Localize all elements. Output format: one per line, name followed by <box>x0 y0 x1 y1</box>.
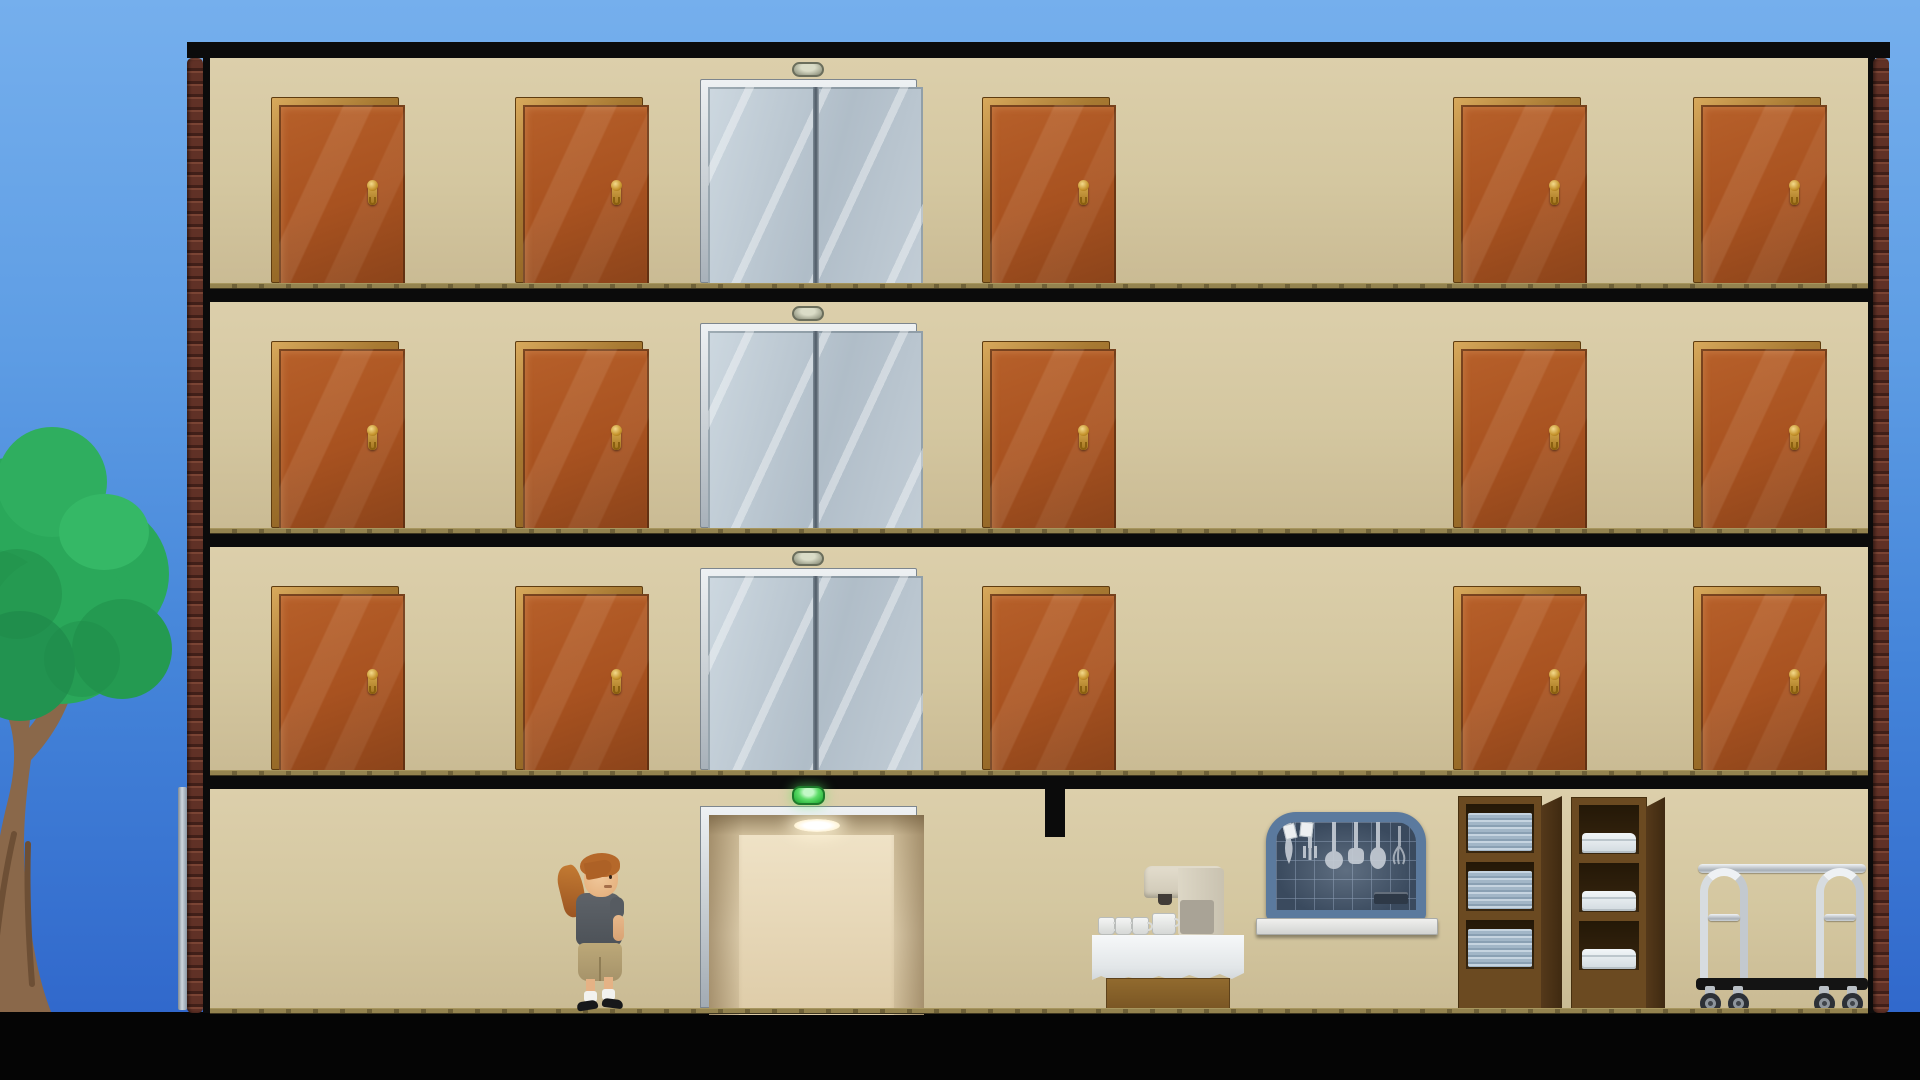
room-door-floor-1-3[interactable] <box>982 586 1110 770</box>
elevator-doors <box>708 331 923 534</box>
door-handle <box>1548 424 1561 454</box>
door-handle <box>1788 179 1801 209</box>
door-sheen <box>279 349 405 534</box>
coffee-service-table[interactable] <box>1092 866 1244 1010</box>
handle-knob <box>1549 669 1560 680</box>
elevator-door-seam <box>813 331 819 534</box>
door-panel <box>523 594 649 776</box>
shelf-compartment <box>1579 863 1639 912</box>
handle-hook <box>369 197 376 205</box>
door-sheen <box>523 349 649 534</box>
room-door-floor-3-1[interactable] <box>271 97 399 283</box>
elevator-floor-2[interactable] <box>700 323 917 528</box>
room-door-floor-1-4[interactable] <box>1453 586 1581 770</box>
elevator-back-wall <box>739 835 894 1015</box>
handle-knob <box>1789 425 1800 436</box>
housekeeper-character[interactable] <box>560 853 632 1010</box>
shelf-compartment <box>1579 805 1639 854</box>
utensil-rack[interactable] <box>1266 812 1426 920</box>
towel-stack <box>1468 813 1532 851</box>
shelf-compartment <box>1466 804 1534 853</box>
handle-knob <box>1549 180 1560 191</box>
door-handle <box>1788 668 1801 698</box>
handle-knob <box>1078 425 1089 436</box>
cart-wheels <box>1696 862 1868 1014</box>
eye <box>609 875 612 879</box>
shoe <box>576 999 598 1011</box>
brick-edge-left <box>187 58 203 1013</box>
room-door-floor-1-2[interactable] <box>515 586 643 770</box>
ladle-icon <box>1325 822 1343 869</box>
elevator-doors <box>708 576 923 776</box>
door-panel <box>990 349 1116 534</box>
folded-sheet <box>1582 891 1636 909</box>
handle-hook <box>1551 442 1558 450</box>
handle-hook <box>1791 686 1798 694</box>
door-panel <box>1461 594 1587 776</box>
shorts-seam <box>599 957 601 981</box>
folded-sheet <box>1582 833 1636 851</box>
door-sheen <box>1701 349 1827 534</box>
door-handle <box>610 179 623 209</box>
brick-edge-right <box>1873 58 1889 1013</box>
arm <box>613 915 624 941</box>
shelf-side-panel <box>1541 796 1562 1010</box>
rack-control-plate <box>1374 892 1408 904</box>
shelf-compartment <box>1579 921 1639 970</box>
towel-stack <box>1468 929 1532 967</box>
door-panel <box>1701 594 1827 776</box>
handle-hook <box>1080 197 1087 205</box>
door-sheen <box>1461 349 1587 534</box>
floor-separator-floor-1 <box>203 776 1874 789</box>
door-handle <box>366 424 379 454</box>
building-roof <box>187 42 1890 58</box>
elevator-car-interior <box>709 815 924 1015</box>
handle-knob <box>611 669 622 680</box>
handle-hook <box>369 442 376 450</box>
handle-knob <box>1078 180 1089 191</box>
handle-hook <box>1551 686 1558 694</box>
door-handle <box>1548 668 1561 698</box>
spatula-icon <box>1348 822 1364 864</box>
room-door-floor-2-4[interactable] <box>1453 341 1581 528</box>
lobby-elevator-open[interactable] <box>700 806 917 1008</box>
room-door-floor-3-4[interactable] <box>1453 97 1581 283</box>
handle-hook <box>1791 442 1798 450</box>
room-door-floor-2-2[interactable] <box>515 341 643 528</box>
handle-hook <box>613 442 620 450</box>
door-panel <box>523 349 649 534</box>
elevator-indicator-idle <box>792 551 824 566</box>
table-mug <box>1098 917 1115 935</box>
door-panel <box>279 105 405 289</box>
door-handle <box>1788 424 1801 454</box>
door-handle <box>366 179 379 209</box>
table-mug <box>1115 917 1132 935</box>
door-sheen <box>523 594 649 776</box>
door-handle <box>1548 179 1561 209</box>
door-handle <box>366 668 379 698</box>
luggage-cart[interactable] <box>1696 862 1868 1014</box>
room-door-floor-3-3[interactable] <box>982 97 1110 283</box>
handle-hook <box>369 686 376 694</box>
door-handle <box>610 668 623 698</box>
door-panel <box>279 349 405 534</box>
handle-hook <box>1080 686 1087 694</box>
sheet-fold <box>1582 897 1636 899</box>
handle-hook <box>1551 197 1558 205</box>
spoon-icon <box>1370 822 1386 869</box>
room-door-floor-3-2[interactable] <box>515 97 643 283</box>
door-sheen <box>990 105 1116 289</box>
ground <box>0 1012 1920 1080</box>
downspout <box>178 787 187 1010</box>
handle-hook <box>1791 197 1798 205</box>
shelf-side-panel <box>1646 797 1665 1010</box>
table-base <box>1106 978 1230 1010</box>
door-handle <box>1077 179 1090 209</box>
handle-knob <box>611 180 622 191</box>
room-door-floor-2-5[interactable] <box>1693 341 1821 528</box>
door-panel <box>523 105 649 289</box>
door-sheen <box>1701 594 1827 776</box>
tree-trunk <box>0 674 74 1014</box>
door-sheen <box>279 105 405 289</box>
handle-knob <box>611 425 622 436</box>
towel-shelf[interactable] <box>1458 796 1562 1010</box>
elevator-indicator-green <box>792 786 825 805</box>
elevator-doors <box>708 87 923 289</box>
room-door-floor-2-3[interactable] <box>982 341 1110 528</box>
door-panel <box>990 594 1116 776</box>
handle-knob <box>367 425 378 436</box>
handle-knob <box>1789 669 1800 680</box>
room-door-floor-1-1[interactable] <box>271 586 399 770</box>
door-sheen <box>1461 105 1587 289</box>
handle-knob <box>1789 180 1800 191</box>
door-panel <box>990 105 1116 289</box>
shelf-compartment <box>1466 920 1534 969</box>
door-handle <box>1077 424 1090 454</box>
door-handle <box>610 424 623 454</box>
elevator-indicator-idle <box>792 306 824 321</box>
handle-knob <box>1078 669 1089 680</box>
handle-hook <box>1080 442 1087 450</box>
elevator-door-seam <box>813 576 819 776</box>
linen-shelf[interactable] <box>1571 797 1665 1010</box>
door-sheen <box>1461 594 1587 776</box>
room-door-floor-2-1[interactable] <box>271 341 399 528</box>
sheet-fold <box>1582 839 1636 841</box>
rack-sill <box>1256 918 1438 935</box>
room-door-floor-3-5[interactable] <box>1693 97 1821 283</box>
door-panel <box>1461 105 1587 289</box>
door-sheen <box>1701 105 1827 289</box>
handle-hook <box>613 197 620 205</box>
elevator-door-seam <box>813 87 819 289</box>
shelf-compartment <box>1466 862 1534 911</box>
door-handle <box>1077 668 1090 698</box>
door-sheen <box>990 594 1116 776</box>
game-stage <box>0 0 1920 1080</box>
elevator-floor-3[interactable] <box>700 79 917 283</box>
elevator-floor-1[interactable] <box>700 568 917 770</box>
table-mug <box>1132 917 1149 935</box>
door-panel <box>1701 349 1827 534</box>
handle-knob <box>367 180 378 191</box>
tree <box>0 424 192 1014</box>
door-sheen <box>523 105 649 289</box>
sheet-fold <box>1582 955 1636 957</box>
floor-separator-floor-2 <box>203 534 1874 547</box>
door-panel <box>1461 349 1587 534</box>
whisk-icon <box>1394 826 1405 864</box>
shoe <box>602 998 624 1009</box>
room-door-floor-1-5[interactable] <box>1693 586 1821 770</box>
door-panel <box>279 594 405 776</box>
door-sheen <box>990 349 1116 534</box>
mug-handle <box>1147 922 1153 931</box>
elevator-indicator-idle <box>792 62 824 77</box>
lobby-wall-stub <box>1045 789 1065 837</box>
mouth <box>604 885 612 888</box>
door-sheen <box>279 594 405 776</box>
handle-knob <box>367 669 378 680</box>
door-panel <box>1701 105 1827 289</box>
handle-hook <box>613 686 620 694</box>
folded-sheet <box>1582 949 1636 967</box>
handle-knob <box>1549 425 1560 436</box>
floor-separator-floor-3 <box>203 289 1874 302</box>
lobby-carpet <box>210 1008 1868 1014</box>
elevator-ceiling-light <box>794 819 840 832</box>
elevator-side-shade <box>890 815 924 1015</box>
building-border-left <box>203 58 210 1013</box>
elevator-side-shade <box>709 815 743 1015</box>
note-card <box>1299 821 1313 837</box>
towel-stack <box>1468 871 1532 909</box>
tree-canopy <box>0 427 172 721</box>
